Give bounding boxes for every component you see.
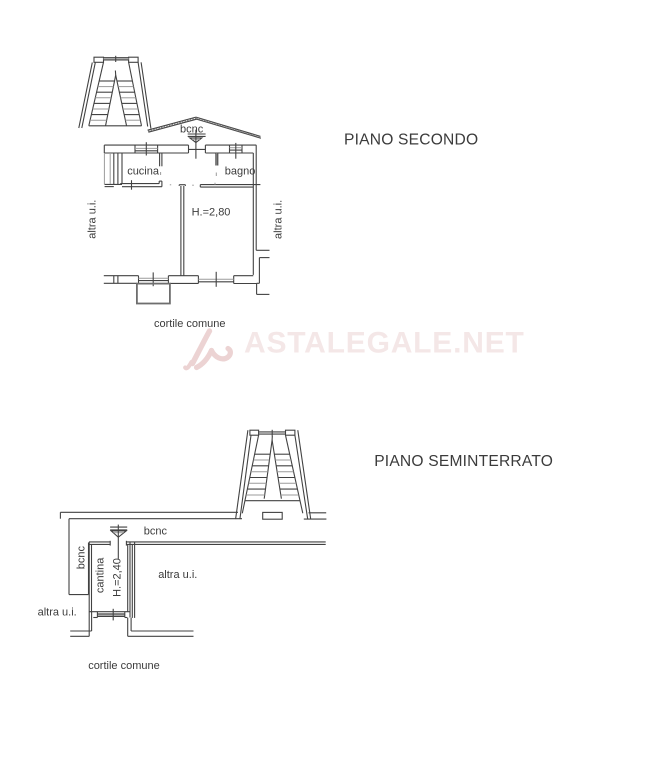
svg-text:cantina: cantina xyxy=(95,557,107,593)
svg-text:bcnc: bcnc xyxy=(75,545,87,569)
svg-text:altra u.i.: altra u.i. xyxy=(158,569,197,581)
svg-text:cucina: cucina xyxy=(127,165,160,177)
svg-text:bcnc: bcnc xyxy=(144,525,168,537)
svg-text:H.=2,80: H.=2,80 xyxy=(192,206,231,218)
svg-text:altra u.i.: altra u.i. xyxy=(38,607,77,619)
svg-text:bagno: bagno xyxy=(225,165,256,177)
svg-text:ASTALEGALE.NET: ASTALEGALE.NET xyxy=(244,326,525,359)
svg-text:cortile comune: cortile comune xyxy=(154,318,226,330)
svg-text:altra u.i.: altra u.i. xyxy=(87,200,99,239)
svg-text:cortile comune: cortile comune xyxy=(88,660,160,672)
svg-text:H.=2,40: H.=2,40 xyxy=(112,558,124,597)
svg-text:PIANO SECONDO: PIANO SECONDO xyxy=(344,132,478,149)
svg-text:PIANO SEMINTERRATO: PIANO SEMINTERRATO xyxy=(374,453,553,470)
svg-text:altra u.i.: altra u.i. xyxy=(273,200,285,239)
